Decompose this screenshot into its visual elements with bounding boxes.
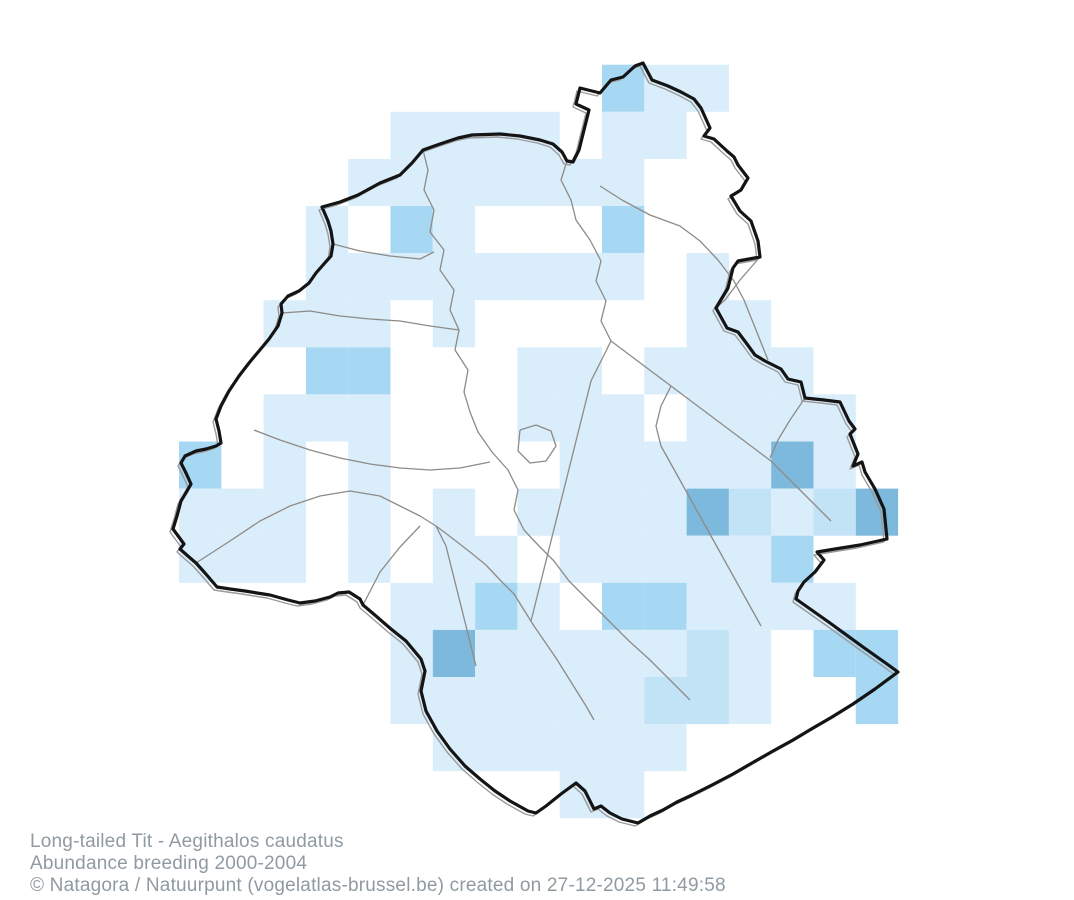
grid-cell — [814, 583, 856, 630]
grid-cell — [391, 112, 433, 159]
grid-cell — [687, 583, 729, 630]
grid-cell — [433, 724, 475, 771]
grid-cell — [348, 489, 390, 536]
grid-cell — [687, 300, 729, 347]
grid-cell — [602, 489, 644, 536]
grid-cell — [644, 724, 686, 771]
grid-cell — [560, 394, 602, 441]
grid-cell — [433, 677, 475, 724]
grid-cell — [560, 630, 602, 677]
grid-cell — [644, 112, 686, 159]
grid-cell — [306, 300, 348, 347]
atlas-page: Long-tailed Tit - Aegithalos caudatus Ab… — [0, 0, 1074, 900]
grid-cell — [644, 536, 686, 583]
grid-cell — [729, 300, 771, 347]
grid-cell — [602, 724, 644, 771]
grid-cell — [433, 206, 475, 253]
grid-cell — [856, 630, 898, 677]
grid-cell — [729, 489, 771, 536]
grid-cell — [517, 724, 559, 771]
grid-cell — [771, 489, 813, 536]
grid-cell — [729, 630, 771, 677]
map-caption: Long-tailed Tit - Aegithalos caudatus Ab… — [30, 831, 726, 897]
grid-cell — [348, 300, 390, 347]
grid-cell — [814, 489, 856, 536]
grid-cell — [306, 347, 348, 394]
grid-cell — [814, 442, 856, 489]
abundance-map — [0, 0, 1074, 900]
grid-cell — [560, 771, 602, 818]
grid-cell — [306, 394, 348, 441]
grid-cell — [475, 677, 517, 724]
grid-cell — [348, 536, 390, 583]
grid-cell — [348, 394, 390, 441]
grid-cell — [560, 536, 602, 583]
copyright-credit: © Natagora / Natuurpunt (vogelatlas-brus… — [30, 875, 726, 897]
grid-cell — [771, 536, 813, 583]
grid-cell — [391, 677, 433, 724]
grid-cell — [517, 159, 559, 206]
grid-cell — [856, 677, 898, 724]
grid-cell — [729, 677, 771, 724]
grid-cell — [264, 394, 306, 441]
grid-cell — [602, 112, 644, 159]
grid-cell — [687, 536, 729, 583]
grid-cell — [687, 347, 729, 394]
grid-cell — [644, 630, 686, 677]
grid-cell — [644, 677, 686, 724]
grid-cell — [475, 583, 517, 630]
grid-cell — [602, 394, 644, 441]
grid-cell — [602, 159, 644, 206]
grid-cell — [602, 630, 644, 677]
grid-cell — [348, 347, 390, 394]
grid-cell — [687, 253, 729, 300]
grid-cell — [221, 489, 263, 536]
grid-cell — [560, 724, 602, 771]
grid-cell — [560, 253, 602, 300]
grid-cell — [433, 583, 475, 630]
grid-cell — [687, 677, 729, 724]
grid-cell — [687, 394, 729, 441]
species-title: Long-tailed Tit - Aegithalos caudatus — [30, 831, 726, 853]
grid-cell — [433, 159, 475, 206]
grid-cell — [771, 347, 813, 394]
grid-cell — [602, 206, 644, 253]
grid-cell — [475, 253, 517, 300]
grid-cell — [475, 724, 517, 771]
grid-cell — [729, 442, 771, 489]
grid-cell — [475, 630, 517, 677]
grid-cell — [602, 65, 644, 112]
grid-cell — [644, 583, 686, 630]
grid-cell — [475, 159, 517, 206]
grid-cell — [560, 677, 602, 724]
grid-cell — [687, 442, 729, 489]
grid-cell — [517, 347, 559, 394]
grid-cell — [560, 489, 602, 536]
grid-cell — [391, 583, 433, 630]
grid-cell — [391, 206, 433, 253]
grid-cell — [644, 65, 686, 112]
grid-cell — [348, 253, 390, 300]
grid-cell — [348, 442, 390, 489]
grid-cell — [391, 253, 433, 300]
grid-cell — [264, 442, 306, 489]
grid-cell — [433, 300, 475, 347]
grid-cell — [602, 442, 644, 489]
grid-cell — [517, 253, 559, 300]
grid-cell — [602, 536, 644, 583]
grid-cell — [729, 536, 771, 583]
grid-cell — [602, 253, 644, 300]
grid-cell — [264, 489, 306, 536]
grid-cell — [517, 677, 559, 724]
map-subtitle: Abundance breeding 2000-2004 — [30, 853, 726, 875]
grid-cell — [264, 536, 306, 583]
grid-cell — [517, 394, 559, 441]
grid-cell — [602, 583, 644, 630]
grid-cell — [687, 489, 729, 536]
grid-cell — [644, 489, 686, 536]
grid-cell — [687, 630, 729, 677]
grid-cell — [602, 677, 644, 724]
